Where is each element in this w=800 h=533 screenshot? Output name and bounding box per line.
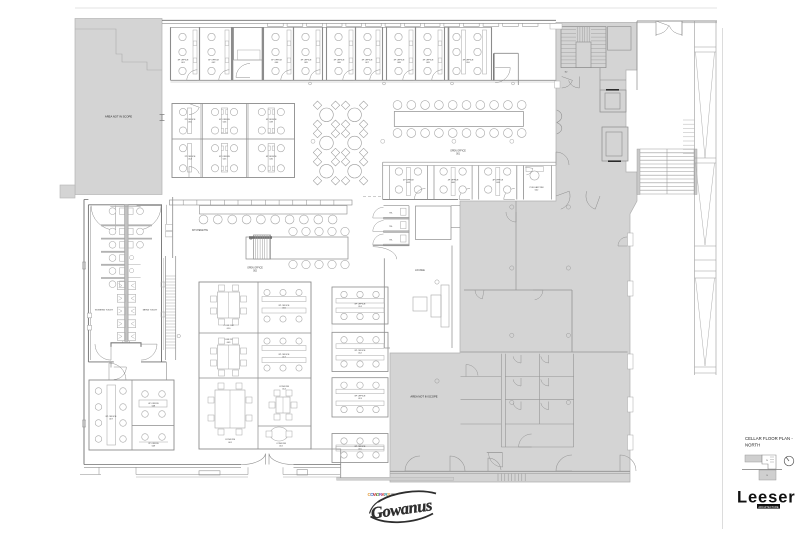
- svg-text:8P OFFICE: 8P OFFICE: [355, 446, 366, 448]
- svg-text:3P OFFICE: 3P OFFICE: [463, 60, 474, 62]
- svg-text:8P OFFICE: 8P OFFICE: [106, 416, 117, 418]
- svg-text:2P OFFICE: 2P OFFICE: [148, 443, 159, 445]
- svg-text:8P OFFICE: 8P OFFICE: [279, 354, 290, 356]
- svg-text:8P OFFICE: 8P OFFICE: [355, 395, 366, 397]
- svg-text:MENS TOILET: MENS TOILET: [143, 310, 158, 312]
- svg-text:3P OFFICE: 3P OFFICE: [334, 60, 345, 62]
- svg-text:Leeser: Leeser: [737, 489, 796, 507]
- svg-text:3P OFFICE: 3P OFFICE: [271, 60, 282, 62]
- svg-text:OPEN OFFICE: OPEN OFFICE: [450, 151, 466, 153]
- svg-text:3P OFFICE: 3P OFFICE: [301, 60, 312, 62]
- svg-text:8P OFFICE: 8P OFFICE: [355, 350, 366, 352]
- svg-text:4P OFFICE: 4P OFFICE: [492, 180, 503, 182]
- svg-text:4P OFFICE: 4P OFFICE: [148, 403, 159, 405]
- svg-text:4P OFFICE: 4P OFFICE: [448, 180, 459, 182]
- svg-text:8P OFFICE: 8P OFFICE: [355, 304, 366, 306]
- svg-text:3P OFFICE: 3P OFFICE: [178, 60, 189, 62]
- svg-text:TEL: TEL: [389, 240, 392, 242]
- svg-text:CONF RM: CONF RM: [224, 325, 234, 327]
- svg-text:CELLAR FLOOR PLAN -: CELLAR FLOOR PLAN -: [745, 436, 793, 441]
- svg-text:8P OFFICE: 8P OFFICE: [279, 305, 290, 307]
- svg-text:PODCAST RM: PODCAST RM: [530, 186, 544, 189]
- svg-text:3P OFFICE: 3P OFFICE: [423, 60, 434, 62]
- svg-text:3P OFFICE: 3P OFFICE: [208, 60, 219, 62]
- svg-text:AREA NOT IN SCOPE: AREA NOT IN SCOPE: [410, 395, 437, 399]
- svg-text:CONF RM: CONF RM: [276, 443, 286, 445]
- svg-text:NORTH: NORTH: [745, 443, 760, 448]
- svg-text:AREA NOT IN SCOPE: AREA NOT IN SCOPE: [105, 115, 132, 119]
- svg-text:CONF RM: CONF RM: [224, 339, 234, 341]
- svg-text:CONF RM: CONF RM: [225, 439, 235, 441]
- svg-text:3P OFFICE: 3P OFFICE: [394, 60, 405, 62]
- svg-text:LOUNGE: LOUNGE: [415, 270, 425, 272]
- svg-text:4P OFFICE: 4P OFFICE: [403, 180, 414, 182]
- svg-text:TEL: TEL: [389, 226, 392, 228]
- svg-text:WOMENS TOILET: WOMENS TOILET: [95, 310, 114, 312]
- svg-text:OPEN OFFICE: OPEN OFFICE: [247, 268, 263, 270]
- svg-text:KITCHENETTE: KITCHENETTE: [192, 230, 208, 232]
- svg-text:TEL: TEL: [389, 213, 392, 215]
- svg-text:CONF RM: CONF RM: [279, 386, 289, 388]
- svg-text:ARCHITECTURE: ARCHITECTURE: [758, 505, 779, 509]
- svg-text:3P OFFICE: 3P OFFICE: [362, 60, 373, 62]
